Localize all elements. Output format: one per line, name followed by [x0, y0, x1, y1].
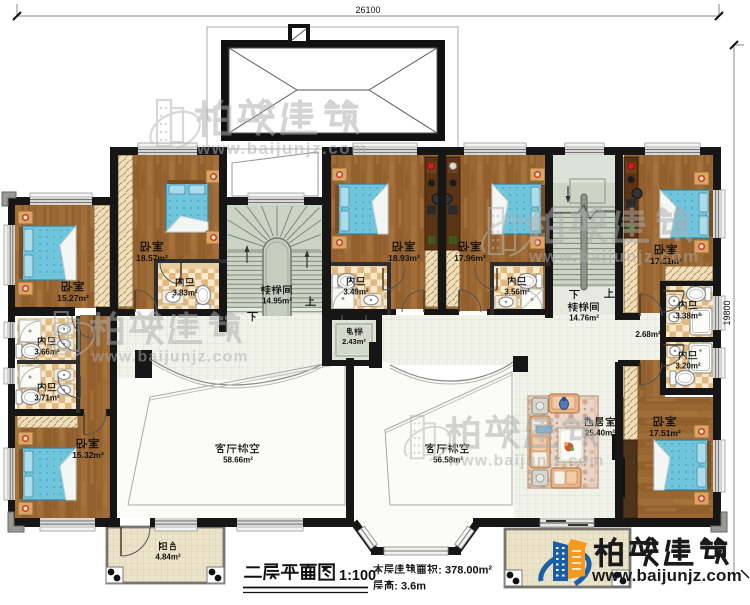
svg-text:19800: 19800 [722, 300, 732, 325]
svg-text:3.20m²: 3.20m² [675, 362, 701, 371]
svg-text:3.83m²: 3.83m² [172, 289, 198, 298]
svg-text:www.baijunjz.com: www.baijunjz.com [591, 566, 742, 585]
svg-text:17.51m²: 17.51m² [649, 428, 681, 438]
svg-text:2.68m²: 2.68m² [635, 330, 661, 339]
svg-text:2.43m²: 2.43m² [342, 337, 366, 346]
svg-text:58.66m²: 58.66m² [223, 456, 253, 465]
svg-text:15.27m²: 15.27m² [57, 293, 89, 303]
svg-text::: : [394, 581, 398, 593]
svg-text::: : [438, 565, 442, 577]
svg-text:17.96m²: 17.96m² [454, 253, 486, 263]
svg-text:www.baijunjz.com: www.baijunjz.com [447, 453, 605, 470]
svg-text:378.00m²: 378.00m² [445, 565, 492, 577]
svg-text:www.baijunjz.com: www.baijunjz.com [528, 247, 700, 266]
svg-text:3.49m²: 3.49m² [343, 288, 369, 297]
svg-text:1:100: 1:100 [339, 568, 376, 584]
svg-text:26100: 26100 [355, 5, 380, 15]
svg-text:4.84m²: 4.84m² [155, 553, 181, 562]
svg-text:www.baijunjz.com: www.baijunjz.com [196, 139, 368, 158]
svg-text:www.baijunjz.com: www.baijunjz.com [91, 349, 249, 366]
svg-text:3.6m: 3.6m [401, 581, 426, 593]
svg-text:15.32m²: 15.32m² [72, 450, 104, 460]
svg-text:18.57m²: 18.57m² [136, 253, 168, 263]
svg-text:14.95m²: 14.95m² [262, 297, 292, 306]
svg-text:3.38m²: 3.38m² [675, 312, 701, 321]
svg-text:3.71m²: 3.71m² [34, 394, 60, 403]
svg-text:3.56m²: 3.56m² [504, 288, 530, 297]
svg-text:14.76m²: 14.76m² [569, 314, 599, 323]
svg-text:18.93m²: 18.93m² [388, 253, 420, 263]
